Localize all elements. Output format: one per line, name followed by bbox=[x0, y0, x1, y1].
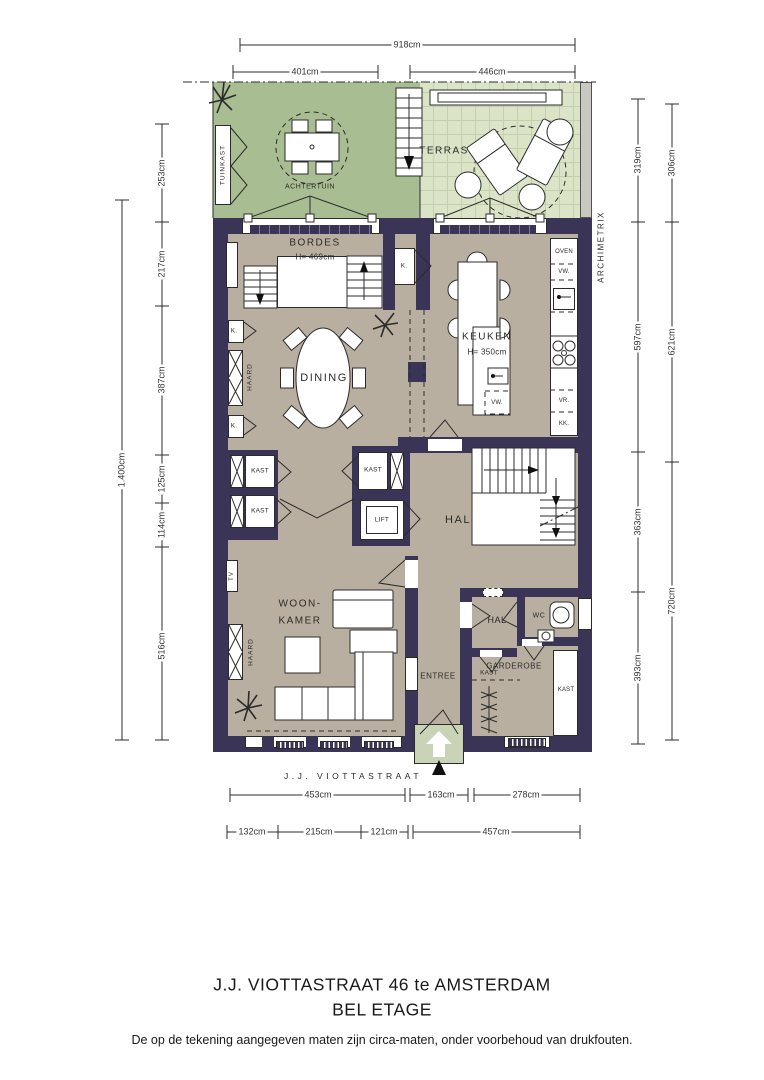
label-kast-1: KAST bbox=[251, 468, 269, 475]
label-k-2: K. bbox=[231, 423, 238, 430]
main-staircase bbox=[472, 448, 578, 545]
dim-918: 918cm bbox=[391, 40, 422, 51]
label-tv: TV bbox=[229, 571, 235, 581]
dim-446: 446cm bbox=[476, 67, 507, 78]
label-vr: VR. bbox=[559, 398, 570, 404]
architect-watermark: ARCHIMETRIX bbox=[597, 211, 606, 283]
woonkamer-furniture bbox=[235, 590, 400, 731]
label-oven: OVEN bbox=[555, 249, 573, 255]
dining-keuken-divider bbox=[410, 310, 424, 437]
label-haard-dining: HAARD bbox=[247, 363, 254, 391]
label-kast-hooks: KAST bbox=[480, 670, 498, 677]
dim-393: 393cm bbox=[633, 652, 644, 683]
kitchen-cabinets bbox=[550, 264, 578, 412]
dim-457: 457cm bbox=[480, 827, 511, 838]
dim-253: 253cm bbox=[157, 157, 168, 188]
label-hal: HAL bbox=[445, 514, 471, 526]
dim-453: 453cm bbox=[302, 790, 333, 801]
label-tuinkast: TUINKAST bbox=[220, 145, 227, 185]
label-kast-2: KAST bbox=[251, 508, 269, 515]
achtertuin-furniture bbox=[209, 82, 348, 184]
dim-121: 121cm bbox=[368, 827, 399, 838]
dim-597: 597cm bbox=[633, 321, 644, 352]
dim-387: 387cm bbox=[157, 364, 168, 395]
plan-linework bbox=[0, 0, 764, 1080]
dim-132: 132cm bbox=[236, 827, 267, 838]
label-entree: ENTREE bbox=[420, 672, 455, 681]
dim-401: 401cm bbox=[289, 67, 320, 78]
label-keuken: KEUKEN bbox=[462, 332, 512, 343]
sheet-disclaimer: De op de tekening aangegeven maten zijn … bbox=[131, 1033, 632, 1047]
label-wc: WC bbox=[533, 613, 546, 620]
label-terras: TERRAS bbox=[419, 146, 469, 157]
bordes-stairs bbox=[244, 256, 382, 308]
label-bordes: BORDES bbox=[289, 238, 340, 249]
garderobe-hooks bbox=[472, 680, 520, 733]
dim-516: 516cm bbox=[157, 630, 168, 661]
dim-215: 215cm bbox=[303, 827, 334, 838]
dim-163: 163cm bbox=[425, 790, 456, 801]
entry-arrow bbox=[426, 731, 452, 775]
label-k-1: K. bbox=[231, 328, 238, 335]
garden-door-swings bbox=[244, 196, 544, 222]
label-woonkamer-1: WOON- bbox=[278, 599, 321, 610]
street-label: J.J. VIOTTASTRAAT bbox=[284, 771, 422, 781]
label-kast-mid: KAST bbox=[364, 467, 382, 474]
dining-set bbox=[281, 313, 399, 428]
dim-319: 319cm bbox=[633, 144, 644, 175]
dim-125: 125cm bbox=[157, 463, 168, 494]
floorplan-sheet: 918cm 401cm 446cm 1.400cm 253cm 217cm 38… bbox=[0, 0, 764, 1080]
dim-217: 217cm bbox=[157, 248, 168, 279]
label-achtertuin: ACHTERTUIN bbox=[285, 184, 335, 191]
dim-278: 278cm bbox=[510, 790, 541, 801]
label-bordes-height: H= 469cm bbox=[295, 253, 334, 262]
label-hal-klein: HAL bbox=[487, 615, 506, 625]
label-kast-tall: KAST bbox=[558, 687, 574, 693]
dim-621: 621cm bbox=[667, 326, 678, 357]
wc-fixtures bbox=[538, 602, 574, 642]
dim-1400: 1.400cm bbox=[117, 451, 128, 490]
label-kk: KK. bbox=[559, 421, 569, 427]
dim-114: 114cm bbox=[157, 510, 168, 540]
label-k-3: K. bbox=[401, 263, 408, 270]
garden-stairs bbox=[396, 88, 422, 176]
label-lift: LIFT bbox=[375, 517, 389, 524]
sheet-subtitle: BEL ETAGE bbox=[332, 1000, 432, 1021]
label-woonkamer-2: KAMER bbox=[278, 616, 321, 627]
dim-720: 720cm bbox=[667, 585, 678, 616]
label-keuken-height: H= 350cm bbox=[467, 348, 506, 357]
sheet-title: J.J. VIOTTASTRAAT 46 te AMSTERDAM bbox=[213, 975, 550, 996]
label-vw-island: VW. bbox=[491, 400, 503, 406]
dim-363: 363cm bbox=[633, 506, 644, 537]
label-dining: DINING bbox=[300, 372, 348, 384]
dim-306: 306cm bbox=[667, 147, 678, 178]
label-vw-wall: VW. bbox=[558, 269, 570, 275]
label-haard-woonkamer: HAARD bbox=[248, 638, 255, 666]
